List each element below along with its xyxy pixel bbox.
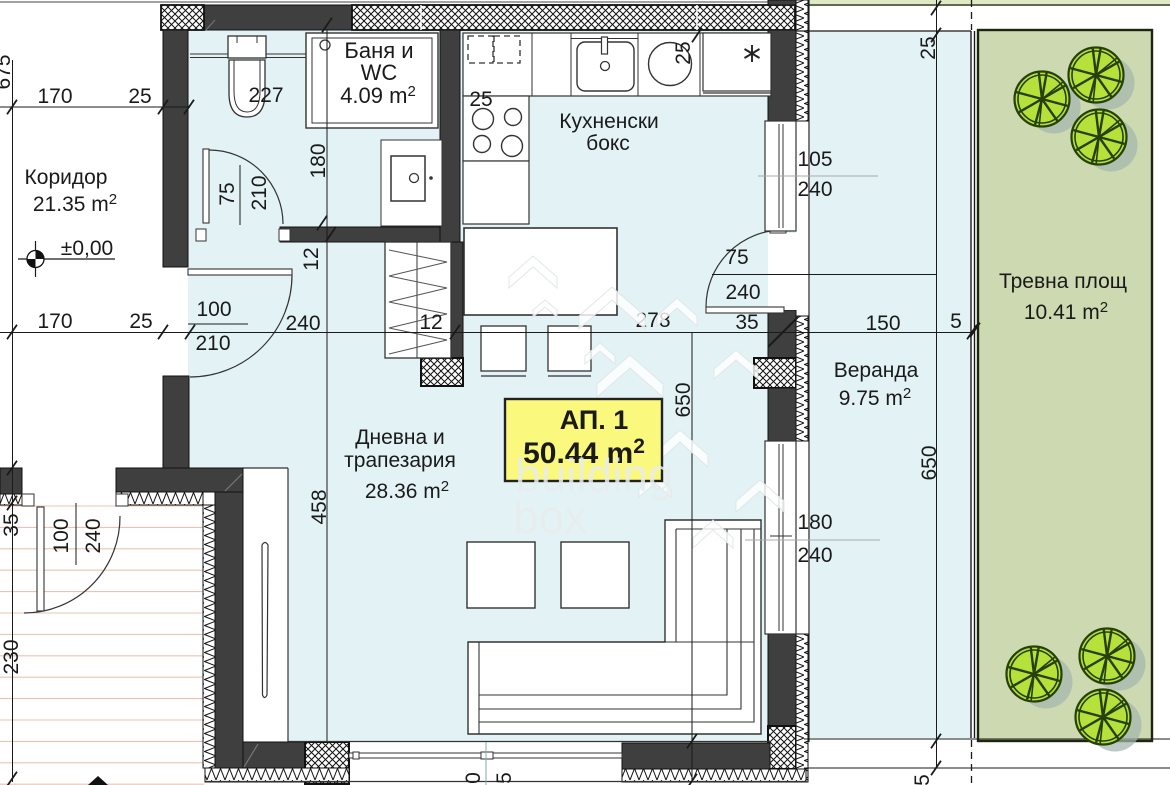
svg-text:9.75 m2: 9.75 m2 [839, 385, 912, 410]
svg-text:170: 170 [37, 310, 72, 333]
svg-text:Дневна и: Дневна и [355, 426, 445, 449]
svg-text:227: 227 [248, 84, 283, 107]
svg-text:25: 25 [469, 88, 492, 111]
svg-text:240: 240 [725, 281, 760, 304]
svg-text:±0,00: ±0,00 [61, 237, 113, 260]
svg-text:25: 25 [672, 41, 695, 64]
svg-text:458: 458 [308, 489, 331, 524]
svg-text:4.09 m2: 4.09 m2 [340, 83, 416, 108]
svg-text:240: 240 [797, 544, 832, 567]
svg-text:240: 240 [797, 178, 832, 201]
svg-text:трапезария: трапезария [344, 449, 456, 472]
svg-text:180: 180 [797, 511, 832, 534]
svg-text:25: 25 [917, 36, 940, 59]
svg-text:5: 5 [493, 772, 516, 784]
svg-text:box: box [513, 491, 587, 543]
svg-text:75: 75 [216, 182, 239, 205]
svg-text:210: 210 [248, 175, 271, 210]
svg-text:25: 25 [129, 310, 152, 333]
svg-text:12: 12 [300, 247, 323, 270]
svg-text:25: 25 [128, 85, 151, 108]
svg-text:75: 75 [725, 246, 748, 269]
svg-text:Коридор: Коридор [25, 166, 108, 189]
svg-text:АП. 1: АП. 1 [560, 405, 629, 435]
svg-text:650: 650 [918, 445, 941, 480]
svg-text:100: 100 [50, 518, 73, 553]
svg-text:230: 230 [0, 639, 23, 674]
svg-text:180: 180 [307, 143, 330, 178]
svg-text:105: 105 [797, 148, 832, 171]
svg-text:170: 170 [37, 85, 72, 108]
svg-text:5: 5 [950, 310, 962, 333]
svg-text:35: 35 [0, 513, 23, 536]
svg-text:650: 650 [672, 382, 695, 417]
svg-text:28.36 m2: 28.36 m2 [365, 478, 449, 503]
svg-text:150: 150 [865, 312, 900, 335]
svg-text:Тревна площ: Тревна площ [999, 270, 1127, 293]
svg-text:10.41 m2: 10.41 m2 [1024, 299, 1108, 324]
svg-text:5: 5 [911, 774, 934, 785]
svg-text:12: 12 [419, 311, 442, 334]
svg-text:21.35 m2: 21.35 m2 [33, 191, 117, 216]
svg-text:0: 0 [462, 772, 485, 784]
svg-text:WC: WC [361, 60, 398, 85]
svg-text:240: 240 [285, 312, 320, 335]
svg-text:35: 35 [735, 311, 758, 334]
svg-text:100: 100 [196, 298, 231, 321]
svg-text:675: 675 [0, 54, 15, 89]
svg-text:240: 240 [82, 518, 105, 553]
svg-text:210: 210 [195, 332, 230, 355]
svg-text:Веранда: Веранда [834, 359, 919, 382]
svg-text:бокс: бокс [586, 132, 630, 155]
svg-text:Кухненски: Кухненски [559, 110, 659, 133]
